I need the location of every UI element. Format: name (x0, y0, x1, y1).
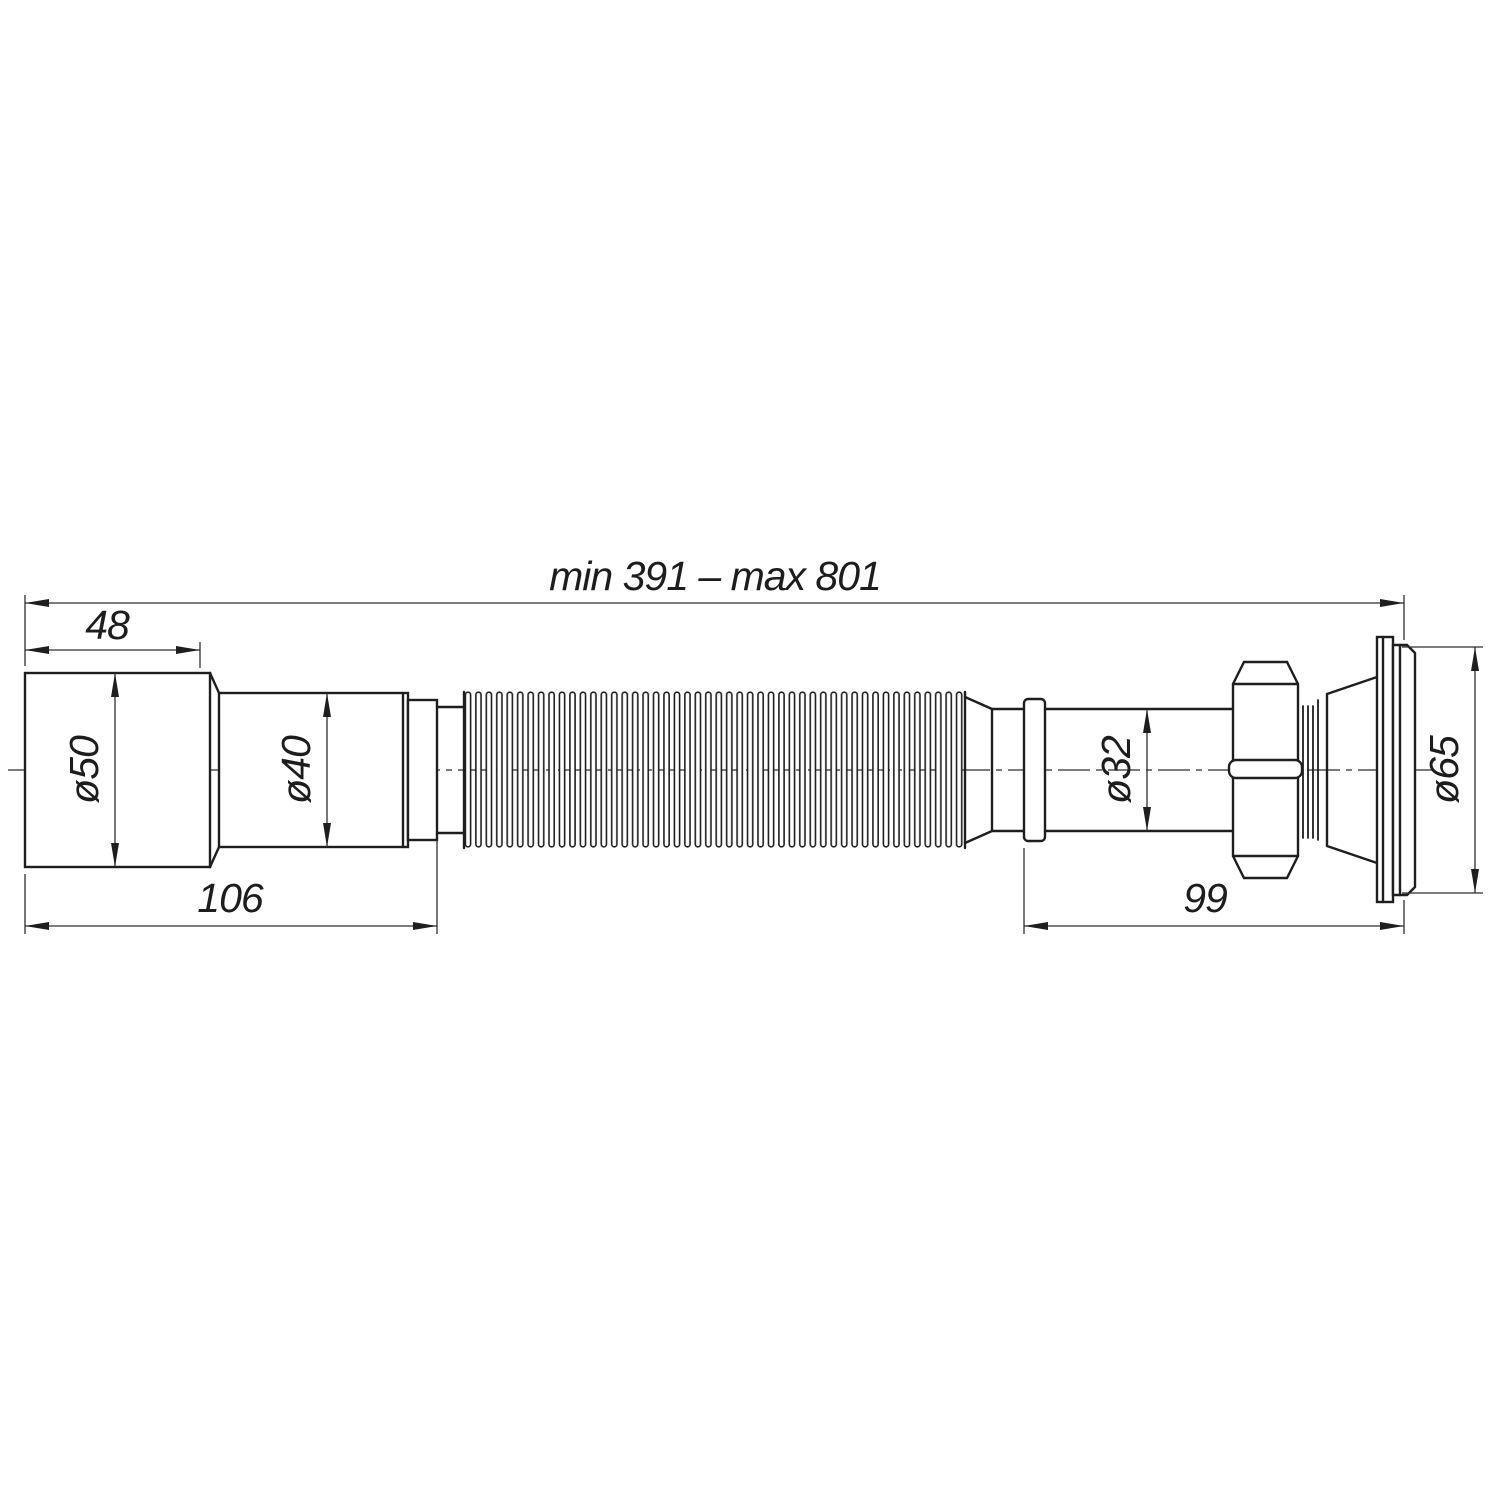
diameter-32-label: ø32 (1093, 735, 1139, 804)
step-collar (408, 700, 437, 840)
corrugated-hose (464, 691, 965, 848)
nut-flat-band (1229, 760, 1302, 778)
retaining-collar (1024, 699, 1045, 841)
diameter-50-label: ø50 (61, 735, 107, 804)
inlet-pipe-50 (25, 673, 210, 867)
drawing-sheet: min 391 – max 801 48 106 99 ø50 ø40 ø32 … (0, 0, 1500, 1500)
flange-cap (1393, 645, 1415, 895)
length-99-label: 99 (1183, 875, 1227, 921)
diameter-65-label: ø65 (1421, 735, 1467, 804)
overall-length-label: min 391 – max 801 (549, 553, 881, 599)
length-106-label: 106 (197, 875, 264, 921)
length-48-label: 48 (85, 602, 130, 648)
diameter-40-label: ø40 (273, 735, 319, 804)
technical-drawing-flexible-siphon: min 391 – max 801 48 106 99 ø50 ø40 ø32 … (0, 0, 1500, 1500)
flange-plate (1377, 637, 1393, 902)
